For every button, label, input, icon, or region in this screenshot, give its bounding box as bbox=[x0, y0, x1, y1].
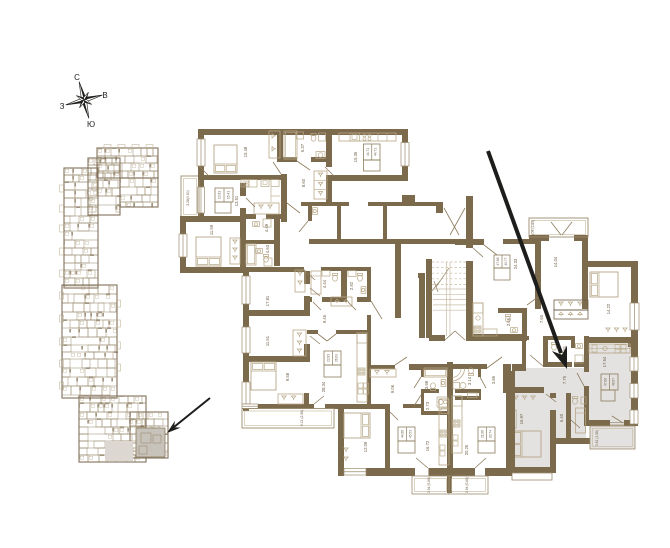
svg-text:24.33: 24.33 bbox=[513, 258, 518, 269]
svg-text:14.22: 14.22 bbox=[606, 303, 611, 314]
svg-text:11.59: 11.59 bbox=[209, 224, 214, 235]
svg-text:3.28(0.60): 3.28(0.60) bbox=[186, 190, 190, 205]
svg-text:З: З bbox=[60, 102, 65, 111]
svg-text:6.40: 6.40 bbox=[559, 413, 564, 422]
svg-text:9.06: 9.06 bbox=[390, 384, 395, 393]
svg-text:8.60: 8.60 bbox=[301, 178, 306, 187]
svg-text:13.81: 13.81 bbox=[218, 191, 222, 199]
svg-text:6.09 (1.83): 6.09 (1.83) bbox=[531, 220, 535, 236]
svg-text:2.66: 2.66 bbox=[506, 317, 511, 326]
svg-text:9.46: 9.46 bbox=[322, 314, 327, 323]
svg-text:45.53: 45.53 bbox=[409, 430, 413, 438]
svg-text:47.66: 47.66 bbox=[603, 378, 607, 386]
svg-text:5.37: 5.37 bbox=[300, 143, 305, 152]
svg-text:5.13 (2.56): 5.13 (2.56) bbox=[300, 410, 304, 426]
svg-text:13.51: 13.51 bbox=[234, 195, 239, 206]
svg-text:15.41: 15.41 bbox=[226, 191, 230, 199]
svg-text:12.09: 12.09 bbox=[363, 441, 368, 452]
svg-text:44.71: 44.71 bbox=[374, 148, 378, 156]
svg-text:2.73: 2.73 bbox=[425, 401, 430, 410]
svg-text:28.34: 28.34 bbox=[321, 381, 326, 392]
svg-text:9.58: 9.58 bbox=[285, 372, 290, 381]
svg-text:44.68: 44.68 bbox=[400, 430, 404, 438]
svg-text:44.71: 44.71 bbox=[366, 148, 370, 156]
svg-text:7.60: 7.60 bbox=[539, 314, 544, 323]
svg-text:21.06: 21.06 bbox=[480, 430, 484, 438]
svg-text:4.49: 4.49 bbox=[264, 223, 269, 232]
svg-text:16.72: 16.72 bbox=[425, 440, 430, 451]
svg-text:В: В bbox=[102, 91, 107, 100]
svg-text:С: С bbox=[74, 73, 80, 82]
svg-text:3.98: 3.98 bbox=[424, 380, 429, 389]
svg-text:4.44: 4.44 bbox=[322, 279, 327, 288]
svg-text:26.09: 26.09 bbox=[335, 354, 339, 362]
svg-text:2.92: 2.92 bbox=[349, 281, 354, 290]
svg-text:49.77: 49.77 bbox=[504, 257, 508, 265]
svg-text:11.51: 11.51 bbox=[265, 335, 270, 346]
svg-text:20.74: 20.74 bbox=[489, 430, 493, 438]
svg-text:3.14: 3.14 bbox=[467, 376, 472, 385]
svg-text:48.67: 48.67 bbox=[612, 378, 616, 386]
svg-text:3.61 (1.08): 3.61 (1.08) bbox=[595, 430, 599, 446]
svg-text:3.86: 3.86 bbox=[491, 375, 496, 384]
svg-text:20.26: 20.26 bbox=[464, 444, 469, 455]
svg-text:17.81: 17.81 bbox=[265, 295, 270, 306]
svg-text:47.66: 47.66 bbox=[496, 257, 500, 265]
svg-text:15.35: 15.35 bbox=[353, 151, 358, 162]
svg-text:7.75: 7.75 bbox=[562, 375, 567, 384]
svg-text:22.83: 22.83 bbox=[326, 354, 330, 362]
svg-text:2.94 (0.88): 2.94 (0.88) bbox=[465, 477, 469, 493]
svg-text:16.97: 16.97 bbox=[519, 413, 524, 424]
svg-text:Ю: Ю bbox=[87, 120, 95, 129]
svg-text:17.64: 17.64 bbox=[602, 356, 607, 367]
svg-text:4.63: 4.63 bbox=[265, 244, 270, 253]
svg-text:15.48: 15.48 bbox=[243, 146, 248, 157]
svg-text:14.04: 14.04 bbox=[553, 256, 558, 267]
svg-text:2.94 (0.88): 2.94 (0.88) bbox=[427, 477, 431, 493]
